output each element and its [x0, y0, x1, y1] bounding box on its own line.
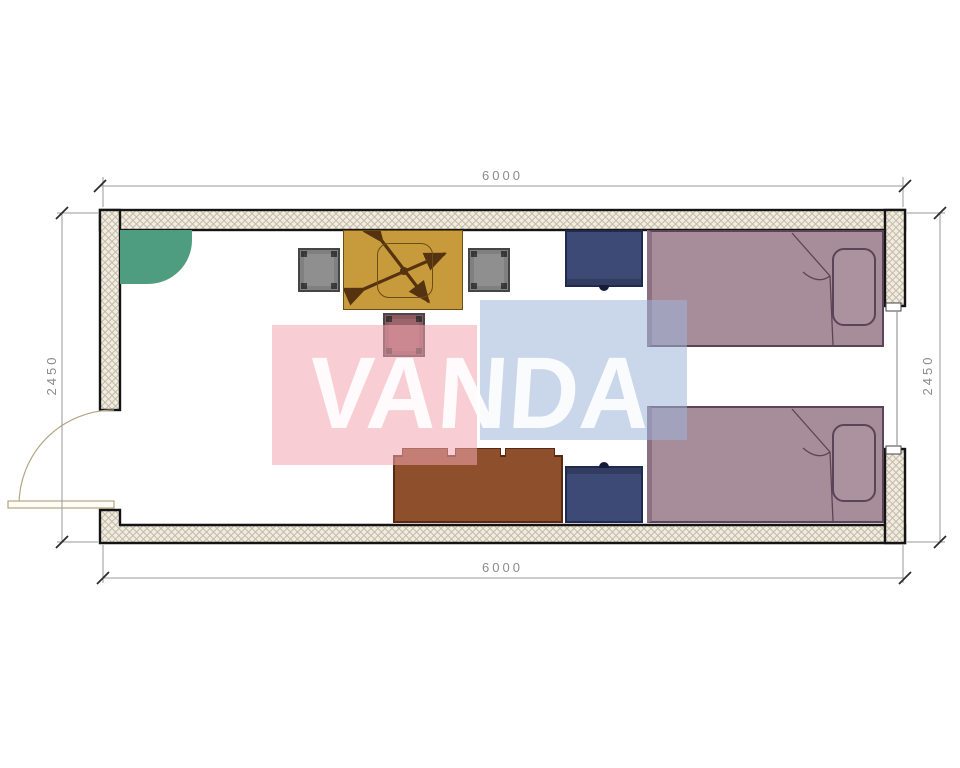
- door-leaf: [8, 501, 114, 508]
- door: [8, 410, 114, 508]
- desk: [343, 230, 463, 310]
- wall-left: [100, 210, 120, 410]
- sideboard: [393, 455, 563, 523]
- desk-chair-seat-outline: [377, 243, 433, 298]
- floor-plan-canvas: 6000 6000 2450 2450: [0, 0, 960, 768]
- chair-right: [468, 248, 510, 292]
- watermark-text: VANDA: [282, 342, 678, 444]
- nightstand-upper: [565, 230, 643, 287]
- wall-top: [100, 210, 905, 230]
- pillow: [832, 248, 876, 326]
- nightstand-lower: [565, 466, 643, 523]
- pillow: [832, 424, 876, 502]
- nightstand-knob: [599, 462, 609, 468]
- door-swing-arc: [19, 410, 114, 505]
- chair-left: [298, 248, 340, 292]
